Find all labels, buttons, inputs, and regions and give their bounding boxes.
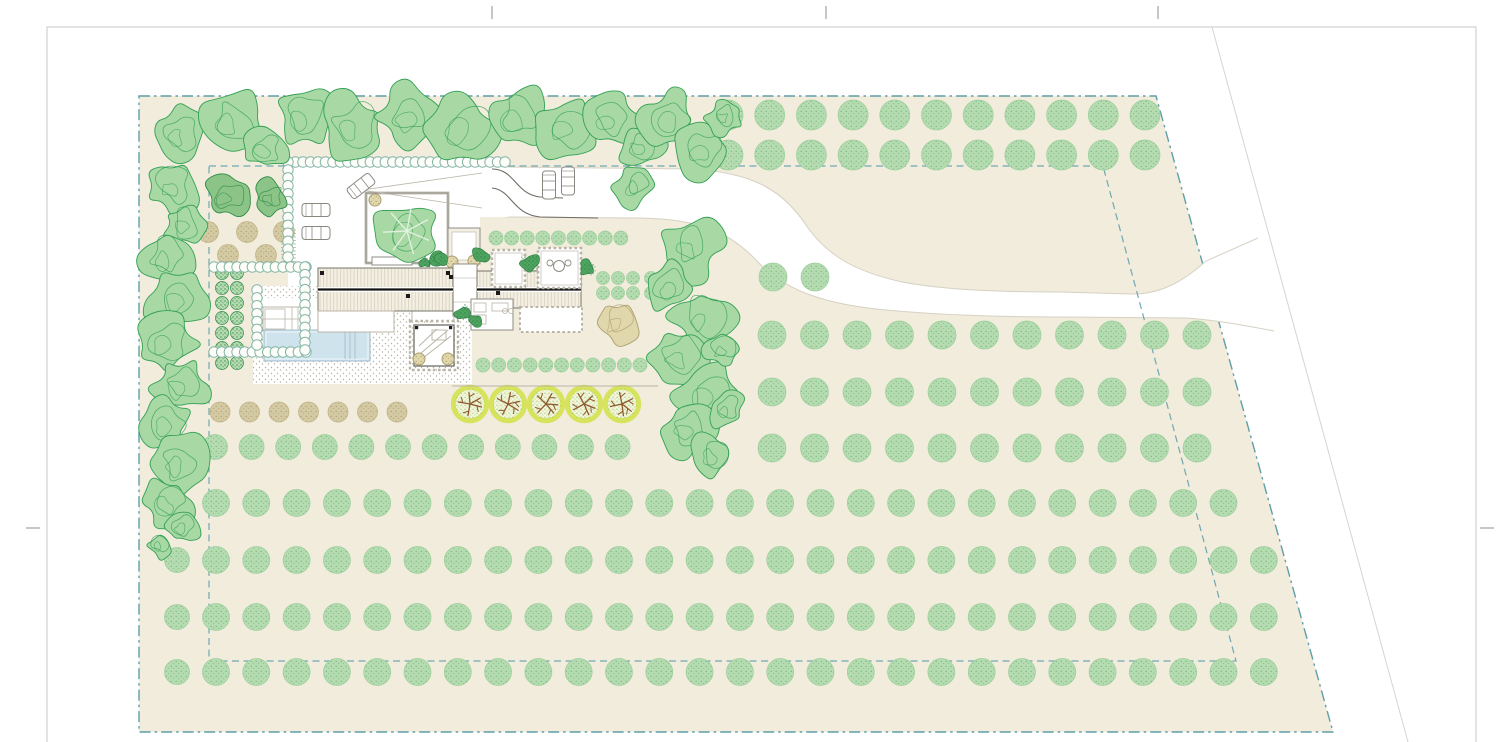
flowering-tree (603, 385, 641, 423)
drawing-sheet (0, 0, 1500, 742)
flowering-trees (451, 385, 641, 423)
garden-pavilion (410, 307, 458, 370)
flowering-tree (527, 385, 565, 423)
pool-house (263, 307, 302, 331)
site-plan-drawing (0, 0, 1500, 742)
car (302, 227, 330, 240)
flowering-tree (489, 385, 527, 423)
car (302, 204, 330, 217)
car (562, 167, 575, 195)
car (543, 171, 556, 199)
flowering-tree (565, 385, 603, 423)
flowering-tree (451, 385, 489, 423)
